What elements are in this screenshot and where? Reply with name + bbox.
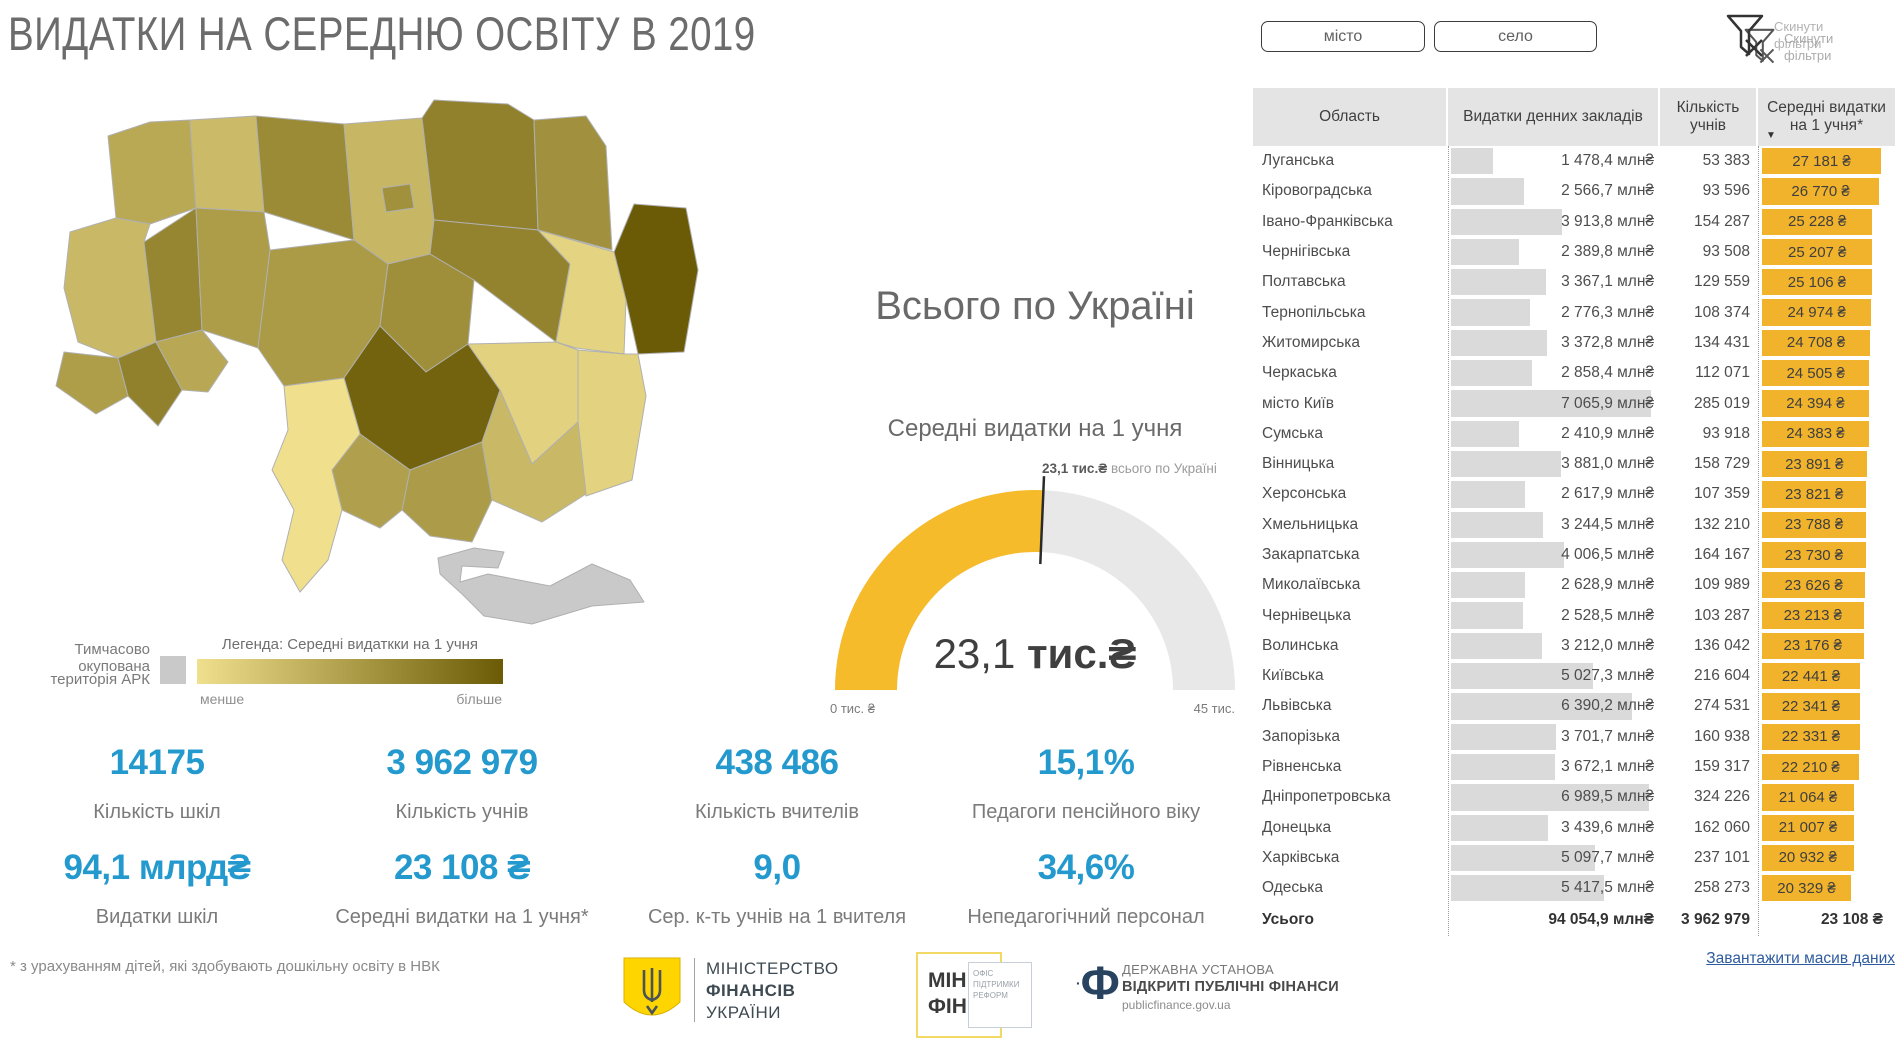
spend-bar	[1451, 602, 1523, 628]
table-row[interactable]: Івано-Франківська3 913,8 млн₴154 28725 2…	[1253, 207, 1895, 237]
pupils-cell: 237 101	[1660, 843, 1758, 873]
spend-bar	[1451, 360, 1532, 386]
table-row[interactable]: Чернівецька2 528,5 млн₴103 28723 213 ₴	[1253, 600, 1895, 630]
avg-cell: 24 383 ₴	[1758, 419, 1895, 449]
pupils-cell: 129 559	[1660, 267, 1758, 297]
spend-cell: 2 776,3 млн₴	[1448, 297, 1660, 327]
avg-bar: 23 176 ₴	[1762, 633, 1864, 659]
spend-bar	[1451, 330, 1547, 356]
spend-cell: 3 212,0 млн₴	[1448, 631, 1660, 661]
pupils-cell: 159 317	[1660, 752, 1758, 782]
region-name: Львівська	[1253, 691, 1448, 721]
region-name: Донецька	[1253, 813, 1448, 843]
kpi-value: 94,1 млрд₴	[27, 848, 287, 888]
region-name: Закарпатська	[1253, 540, 1448, 570]
avg-bar: 25 106 ₴	[1762, 269, 1872, 295]
region-name: Вінницька	[1253, 449, 1448, 479]
occupied-territory-label-2: територія АРК	[8, 671, 150, 688]
avg-cell: 21 007 ₴	[1758, 813, 1895, 843]
table-header: Область Видатки денних закладів Кількіст…	[1253, 88, 1895, 146]
table-row[interactable]: Черкаська2 858,4 млн₴112 07124 505 ₴	[1253, 358, 1895, 388]
avg-bar: 22 331 ₴	[1762, 724, 1860, 750]
table-row[interactable]: Херсонська2 617,9 млн₴107 35923 821 ₴	[1253, 479, 1895, 509]
avg-cell: 23 730 ₴	[1758, 540, 1895, 570]
avg-cell: 20 932 ₴	[1758, 843, 1895, 873]
filter-button-village[interactable]: село	[1434, 21, 1597, 52]
pupils-cell: 93 508	[1660, 237, 1758, 267]
pupils-cell: 93 596	[1660, 176, 1758, 206]
spend-cell: 6 989,5 млн₴	[1448, 782, 1660, 812]
spend-bar	[1451, 512, 1543, 538]
spend-cell: 2 628,9 млн₴	[1448, 570, 1660, 600]
avg-cell: 26 770 ₴	[1758, 176, 1895, 206]
table-row[interactable]: Запорізька3 701,7 млн₴160 93822 331 ₴	[1253, 722, 1895, 752]
minfin-logo-text: МІНІСТЕРСТВО ФІНАНСІВ УКРАЇНИ	[706, 958, 839, 1024]
openbudget-logo-text: ДЕРЖАВНА УСТАНОВА ВІДКРИТІ ПУБЛІЧНІ ФІНА…	[1122, 962, 1339, 1012]
pupils-cell: 132 210	[1660, 510, 1758, 540]
logo-divider	[694, 958, 695, 1022]
pupils-cell: 93 918	[1660, 419, 1758, 449]
spend-cell: 2 858,4 млн₴	[1448, 358, 1660, 388]
pupils-cell: 258 273	[1660, 873, 1758, 903]
pupils-cell: 160 938	[1660, 722, 1758, 752]
total-label: Усього	[1253, 904, 1448, 936]
kpi-value: 438 486	[647, 743, 907, 783]
table-row[interactable]: Миколаївська2 628,9 млн₴109 98923 626 ₴	[1253, 570, 1895, 600]
kpi-label: Непедагогічний персонал	[956, 906, 1216, 929]
column-header-pupils[interactable]: Кількість учнів	[1660, 88, 1758, 146]
openbudget-icon: ·Ф	[1076, 960, 1120, 1006]
avg-cell: 23 176 ₴	[1758, 631, 1895, 661]
table-row[interactable]: Дніпропетровська6 989,5 млн₴324 22621 06…	[1253, 782, 1895, 812]
total-pupils: 3 962 979	[1660, 904, 1758, 936]
pupils-cell: 285 019	[1660, 388, 1758, 418]
column-divider	[1758, 146, 1759, 936]
table-row[interactable]: Чернігівська2 389,8 млн₴93 50825 207 ₴	[1253, 237, 1895, 267]
spend-cell: 6 390,2 млн₴	[1448, 691, 1660, 721]
sort-desc-icon: ▼	[1766, 127, 1776, 145]
pupils-cell: 53 383	[1660, 146, 1758, 176]
pupils-cell: 154 287	[1660, 207, 1758, 237]
map-region-crimea[interactable]: Тимчасово окупована територія АРК	[438, 548, 644, 624]
table-row[interactable]: Донецька3 439,6 млн₴162 06021 007 ₴	[1253, 813, 1895, 843]
avg-cell: 23 213 ₴	[1758, 600, 1895, 630]
avg-bar: 26 770 ₴	[1762, 178, 1879, 204]
map-region-luhanska[interactable]: Луганська	[614, 204, 698, 354]
footnote: * з урахуванням дітей, які здобувають до…	[10, 958, 440, 975]
pupils-cell: 324 226	[1660, 782, 1758, 812]
spend-bar	[1451, 148, 1493, 174]
avg-bar: 23 821 ₴	[1762, 481, 1866, 507]
region-name: Харківська	[1253, 843, 1448, 873]
kpi-value: 14175	[27, 743, 287, 783]
page-title: ВИДАТКИ НА СЕРЕДНЮ ОСВІТУ В 2019	[8, 6, 756, 61]
map-region-volynska[interactable]: Волинська	[108, 120, 196, 224]
kpi-value: 9,0	[647, 848, 907, 888]
region-name: Тернопільська	[1253, 297, 1448, 327]
column-divider	[1448, 146, 1449, 936]
table-row[interactable]: Луганська1 478,4 млн₴53 38327 181 ₴	[1253, 146, 1895, 176]
table-row[interactable]: Закарпатська4 006,5 млн₴164 16723 730 ₴	[1253, 540, 1895, 570]
map-region-sumska[interactable]: Сумська	[534, 116, 612, 250]
pupils-cell: 164 167	[1660, 540, 1758, 570]
avg-bar: 24 974 ₴	[1762, 299, 1871, 325]
table-row[interactable]: Сумська2 410,9 млн₴93 91824 383 ₴	[1253, 419, 1895, 449]
kpi-label: Видатки шкіл	[27, 906, 287, 929]
table-row[interactable]: Вінницька3 881,0 млн₴158 72923 891 ₴	[1253, 449, 1895, 479]
spend-cell: 5 097,7 млн₴	[1448, 843, 1660, 873]
map-region-lvivska[interactable]: Львівська	[64, 218, 156, 358]
region-name: Івано-Франківська	[1253, 207, 1448, 237]
spend-bar	[1451, 209, 1562, 235]
region-name: Волинська	[1253, 631, 1448, 661]
table-row[interactable]: Одеська5 417,5 млн₴258 27320 329 ₴	[1253, 873, 1895, 903]
table-row[interactable]: Рівненська3 672,1 млн₴159 31722 210 ₴	[1253, 752, 1895, 782]
spend-bar	[1451, 299, 1530, 325]
avg-bar: 24 708 ₴	[1762, 330, 1870, 356]
map-legend-title: Легенда: Середні видаткки на 1 учня	[195, 636, 505, 653]
avg-cell: 27 181 ₴	[1758, 146, 1895, 176]
spend-bar	[1451, 572, 1525, 598]
region-name: Полтавська	[1253, 267, 1448, 297]
avg-bar: 24 383 ₴	[1762, 421, 1869, 447]
region-name: Рівненська	[1253, 752, 1448, 782]
reform-office-box: ОФІС ПІДТРИМКИ РЕФОРМ	[968, 962, 1032, 1028]
avg-bar: 23 213 ₴	[1762, 602, 1864, 628]
avg-cell: 22 210 ₴	[1758, 752, 1895, 782]
table-row[interactable]: Тернопільська2 776,3 млн₴108 37424 974 ₴	[1253, 297, 1895, 327]
download-data-link[interactable]: Завантажити масив даних	[1650, 950, 1895, 968]
map-region-zakarpatska[interactable]: Закарпатська	[56, 352, 128, 414]
region-name: Кіровоградська	[1253, 176, 1448, 206]
spend-cell: 3 244,5 млн₴	[1448, 510, 1660, 540]
avg-bar: 20 932 ₴	[1762, 845, 1854, 871]
region-name: Запорізька	[1253, 722, 1448, 752]
kpi-label: Сер. к-ть учнів на 1 вчителя	[647, 906, 907, 929]
region-name: Чернівецька	[1253, 600, 1448, 630]
table-row[interactable]: Київська5 027,3 млн₴216 60422 441 ₴	[1253, 661, 1895, 691]
spend-cell: 3 913,8 млн₴	[1448, 207, 1660, 237]
pupils-cell: 103 287	[1660, 600, 1758, 630]
region-name: Черкаська	[1253, 358, 1448, 388]
avg-bar: 20 329 ₴	[1762, 875, 1851, 901]
avg-cell: 24 394 ₴	[1758, 388, 1895, 418]
kpi-value: 3 962 979	[332, 743, 592, 783]
avg-cell: 22 331 ₴	[1758, 722, 1895, 752]
column-header-avg[interactable]: Середні видатки на 1 учня* ▼	[1758, 88, 1895, 146]
spend-bar	[1451, 239, 1519, 265]
avg-cell: 25 207 ₴	[1758, 237, 1895, 267]
map-legend-gradient	[197, 659, 503, 684]
avg-bar: 23 788 ₴	[1762, 512, 1866, 538]
table-row[interactable]: Полтавська3 367,1 млн₴129 55925 106 ₴	[1253, 267, 1895, 297]
kpi-value: 34,6%	[956, 848, 1216, 888]
avg-bar: 23 891 ₴	[1762, 451, 1867, 477]
gauge-panel-title: Всього по Україні	[820, 284, 1250, 329]
avg-cell: 24 505 ₴	[1758, 358, 1895, 388]
table-row[interactable]: Хмельницька3 244,5 млн₴132 21023 788 ₴	[1253, 510, 1895, 540]
pupils-cell: 274 531	[1660, 691, 1758, 721]
table-row[interactable]: Кіровоградська2 566,7 млн₴93 59626 770 ₴	[1253, 176, 1895, 206]
pupils-cell: 162 060	[1660, 813, 1758, 843]
column-header-region[interactable]: Область	[1253, 88, 1448, 146]
spend-cell: 3 672,1 млн₴	[1448, 752, 1660, 782]
total-spend: 94 054,9 млн₴	[1448, 904, 1660, 936]
avg-bar: 23 626 ₴	[1762, 572, 1865, 598]
reset-filters-label-2: фільтри	[1784, 47, 1833, 64]
avg-cell: 22 341 ₴	[1758, 691, 1895, 721]
region-name: місто Київ	[1253, 388, 1448, 418]
avg-cell: 21 064 ₴	[1758, 782, 1895, 812]
avg-cell: 25 106 ₴	[1758, 267, 1895, 297]
total-avg: 23 108 ₴	[1758, 904, 1895, 936]
map-region-kyiv_city[interactable]: місто Київ	[382, 184, 414, 212]
kpi-label: Кількість учнів	[332, 801, 592, 824]
table-body: Луганська1 478,4 млн₴53 38327 181 ₴Кіров…	[1253, 146, 1895, 903]
pupils-cell: 134 431	[1660, 328, 1758, 358]
spend-bar	[1451, 815, 1548, 841]
gauge-subtitle: Середні видатки на 1 учня	[845, 415, 1225, 443]
map-region-zhytomyrska[interactable]: Житомирська	[256, 116, 354, 240]
avg-bar: 22 210 ₴	[1762, 754, 1859, 780]
avg-cell: 24 708 ₴	[1758, 328, 1895, 358]
kpi-label: Кількість вчителів	[647, 801, 907, 824]
kpi-label: Кількість шкіл	[27, 801, 287, 824]
region-name: Сумська	[1253, 419, 1448, 449]
regions-table: Область Видатки денних закладів Кількіст…	[1253, 88, 1895, 968]
spend-cell: 4 006,5 млн₴	[1448, 540, 1660, 570]
avg-cell: 24 974 ₴	[1758, 297, 1895, 327]
occupied-territory-swatch	[160, 656, 186, 684]
avg-cell: 23 626 ₴	[1758, 570, 1895, 600]
spend-cell: 5 027,3 млн₴	[1448, 661, 1660, 691]
reset-filters-button-ghost[interactable]: Скинути фільтри	[1744, 28, 1833, 66]
spend-bar	[1451, 269, 1546, 295]
avg-bar: 25 228 ₴	[1762, 209, 1872, 235]
spend-cell: 3 372,8 млн₴	[1448, 328, 1660, 358]
avg-cell: 25 228 ₴	[1758, 207, 1895, 237]
table-row[interactable]: Харківська5 097,7 млн₴237 10120 932 ₴	[1253, 843, 1895, 873]
table-row[interactable]: місто Київ7 065,9 млн₴285 01924 394 ₴	[1253, 388, 1895, 418]
kpi-value: 23 108 ₴	[332, 848, 592, 888]
occupied-territory-label-1: Тимчасово окупована	[8, 641, 150, 675]
avg-bar: 27 181 ₴	[1762, 148, 1881, 174]
spend-cell: 1 478,4 млн₴	[1448, 146, 1660, 176]
kpi-value: 15,1%	[956, 743, 1216, 783]
region-name: Житомирська	[1253, 328, 1448, 358]
spend-cell: 2 389,8 млн₴	[1448, 237, 1660, 267]
kpi-label: Середні видатки на 1 учня*	[332, 906, 592, 929]
map-legend-less: менше	[200, 691, 244, 707]
spend-cell: 3 439,6 млн₴	[1448, 813, 1660, 843]
region-name: Чернігівська	[1253, 237, 1448, 267]
filter-button-city[interactable]: місто	[1261, 21, 1425, 52]
region-name: Хмельницька	[1253, 510, 1448, 540]
region-name: Дніпропетровська	[1253, 782, 1448, 812]
avg-cell: 23 788 ₴	[1758, 510, 1895, 540]
dashboard: ВИДАТКИ НА СЕРЕДНЮ ОСВІТУ В 2019 місто с…	[0, 0, 1904, 1043]
gauge-center-value: 23,1 тис.₴	[885, 630, 1185, 678]
spend-bar	[1451, 481, 1525, 507]
filter-x-icon	[1744, 28, 1780, 66]
avg-cell: 20 329 ₴	[1758, 873, 1895, 903]
pupils-cell: 109 989	[1660, 570, 1758, 600]
spend-cell: 7 065,9 млн₴	[1448, 388, 1660, 418]
avg-bar: 21 064 ₴	[1762, 784, 1854, 810]
ukraine-choropleth-map: Волинська Рівненська Житомирська Київськ…	[30, 92, 700, 637]
spend-bar	[1451, 421, 1519, 447]
spend-cell: 2 410,9 млн₴	[1448, 419, 1660, 449]
spend-cell: 2 566,7 млн₴	[1448, 176, 1660, 206]
avg-cell: 22 441 ₴	[1758, 661, 1895, 691]
pupils-cell: 107 359	[1660, 479, 1758, 509]
avg-bar: 25 207 ₴	[1762, 239, 1872, 265]
map-region-rivnenska[interactable]: Рівненська	[190, 116, 264, 212]
column-header-spend[interactable]: Видатки денних закладів	[1448, 88, 1660, 146]
reset-filters-label-1: Скинути	[1784, 30, 1833, 47]
pupils-cell: 108 374	[1660, 297, 1758, 327]
spend-cell: 5 417,5 млн₴	[1448, 873, 1660, 903]
gauge-max-label: 45 тис.	[1150, 701, 1235, 716]
table-total-row: Усього94 054,9 млн₴3 962 97923 108 ₴	[1253, 904, 1895, 936]
spend-bar	[1451, 724, 1556, 750]
gauge-min-label: 0 тис. ₴	[830, 701, 875, 716]
region-name: Київська	[1253, 661, 1448, 691]
table-row[interactable]: Житомирська3 372,8 млн₴134 43124 708 ₴	[1253, 328, 1895, 358]
spend-cell: 2 617,9 млн₴	[1448, 479, 1660, 509]
region-name: Одеська	[1253, 873, 1448, 903]
map-legend-more: більше	[440, 691, 502, 707]
minfin-shield-icon	[620, 956, 684, 1028]
avg-bar: 23 730 ₴	[1762, 542, 1866, 568]
spend-cell: 2 528,5 млн₴	[1448, 600, 1660, 630]
avg-bar: 24 394 ₴	[1762, 390, 1869, 416]
spend-cell: 3 367,1 млн₴	[1448, 267, 1660, 297]
spend-cell: 3 881,0 млн₴	[1448, 449, 1660, 479]
table-row[interactable]: Львівська6 390,2 млн₴274 53122 341 ₴	[1253, 691, 1895, 721]
avg-bar: 22 441 ₴	[1762, 663, 1860, 689]
pupils-cell: 136 042	[1660, 631, 1758, 661]
spend-bar	[1451, 451, 1561, 477]
map-region-chernihivska[interactable]: Чернігівська	[422, 100, 538, 230]
avg-bar: 21 007 ₴	[1762, 815, 1854, 841]
region-name: Луганська	[1253, 146, 1448, 176]
kpi-label: Педагоги пенсійного віку	[956, 801, 1216, 824]
pupils-cell: 112 071	[1660, 358, 1758, 388]
spend-bar	[1451, 754, 1555, 780]
region-name: Херсонська	[1253, 479, 1448, 509]
pupils-cell: 158 729	[1660, 449, 1758, 479]
spend-bar	[1451, 633, 1542, 659]
avg-cell: 23 891 ₴	[1758, 449, 1895, 479]
pupils-cell: 216 604	[1660, 661, 1758, 691]
avg-bar: 22 341 ₴	[1762, 693, 1860, 719]
spend-cell: 3 701,7 млн₴	[1448, 722, 1660, 752]
map-region-donetska[interactable]: Донецька	[578, 350, 646, 496]
spend-bar	[1451, 542, 1564, 568]
avg-cell: 23 821 ₴	[1758, 479, 1895, 509]
region-name: Миколаївська	[1253, 570, 1448, 600]
avg-bar: 24 505 ₴	[1762, 360, 1869, 386]
table-row[interactable]: Волинська3 212,0 млн₴136 04223 176 ₴	[1253, 631, 1895, 661]
map-region-khmelnytska[interactable]: Хмельницька	[196, 208, 270, 348]
spend-bar	[1451, 178, 1524, 204]
